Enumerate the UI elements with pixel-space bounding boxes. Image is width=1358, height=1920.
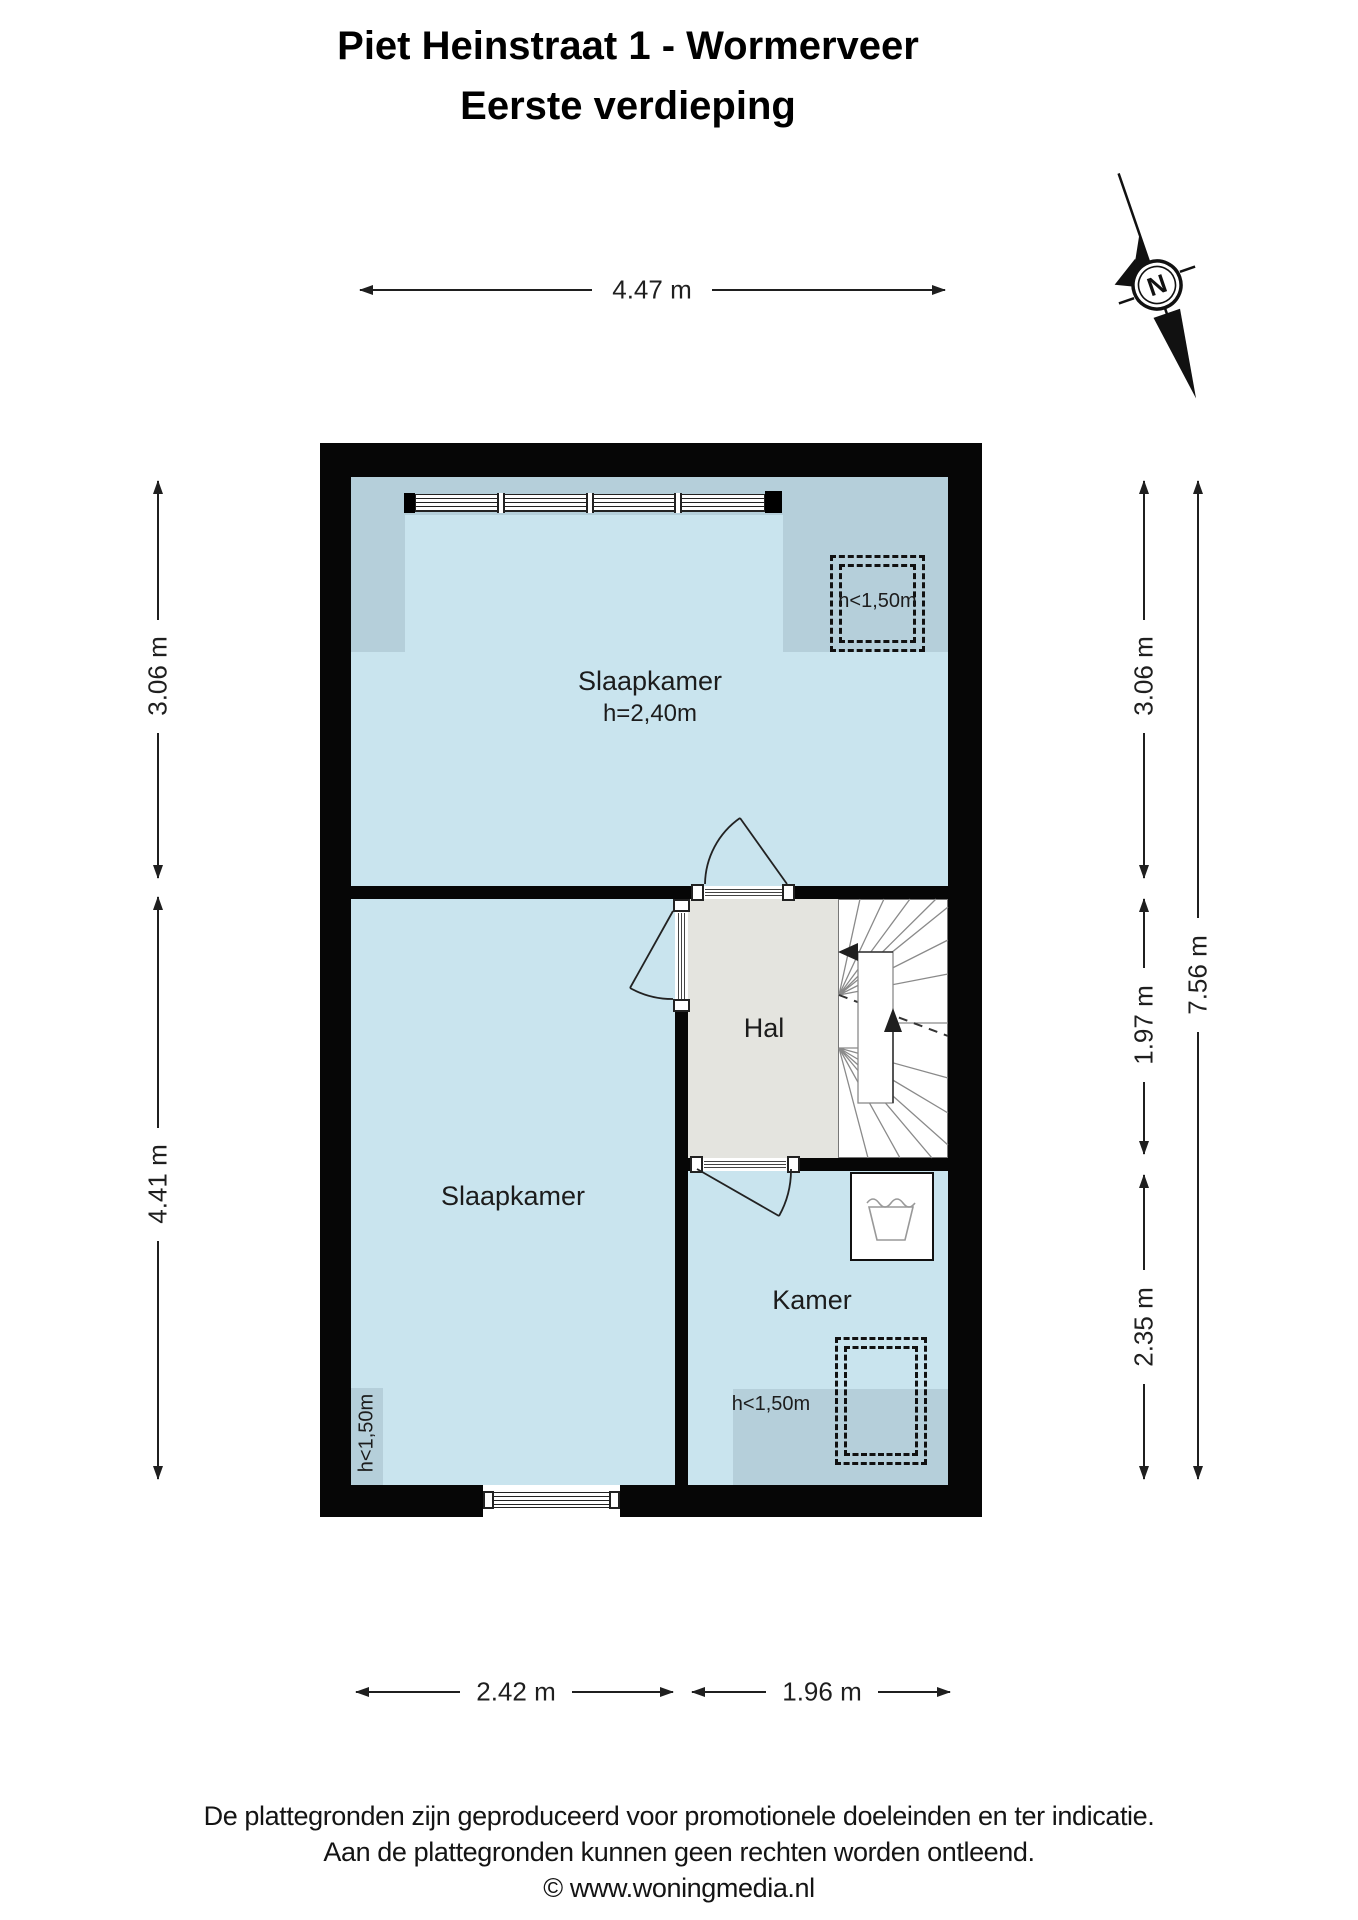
roof-window-dashed-kamer-inner — [844, 1346, 918, 1456]
dim-right-lower: 2.35 m — [1129, 1287, 1160, 1367]
window-mullion — [586, 493, 594, 513]
label-hal: Hal — [704, 1013, 824, 1044]
label-slaapkamer-bottom: Slaapkamer — [393, 1181, 633, 1212]
window-mullion — [497, 493, 505, 513]
staircase-area — [838, 899, 948, 1158]
floorplan-page: Piet Heinstraat 1 - Wormerveer Eerste ve… — [0, 0, 1358, 1920]
compass-letter: N — [1143, 268, 1171, 302]
label-low-height-top: h<1,50m — [830, 590, 925, 613]
label-slaapkamer-top-height: h=2,40m — [530, 700, 770, 728]
window-end-cap-left — [404, 493, 415, 513]
label-slaapkamer-top: Slaapkamer — [530, 666, 770, 697]
dim-left-lower: 4.41 m — [143, 1144, 174, 1224]
door-jamb — [673, 899, 690, 912]
footer-line-2: Aan de plattegronden kunnen geen rechten… — [0, 1834, 1358, 1870]
washing-machine-icon — [850, 1172, 934, 1261]
window-end-cap-right — [765, 491, 782, 513]
door-jamb — [782, 884, 795, 901]
dim-left-upper: 3.06 m — [143, 636, 174, 716]
window-jamb-left — [483, 1491, 494, 1509]
door-jamb — [691, 884, 704, 901]
compass-north-icon: N — [1079, 160, 1236, 412]
door-threshold-top — [705, 887, 783, 898]
dim-right-upper: 3.06 m — [1129, 636, 1160, 716]
footer-line-1: De plattegronden zijn geproduceerd voor … — [0, 1798, 1358, 1834]
dim-right-middle: 1.97 m — [1129, 985, 1160, 1065]
dim-right-total: 7.56 m — [1183, 935, 1214, 1015]
door-threshold-left — [676, 913, 687, 1000]
dim-bottom-right: 1.96 m — [782, 1677, 862, 1708]
door-threshold-bottom — [704, 1159, 786, 1170]
window-jamb-right — [609, 1491, 620, 1509]
footer-disclaimer: De plattegronden zijn geproduceerd voor … — [0, 1798, 1358, 1906]
title-line-1: Piet Heinstraat 1 - Wormerveer — [0, 16, 1256, 76]
low-height-zone-top-left — [351, 477, 405, 652]
page-title: Piet Heinstraat 1 - Wormerveer Eerste ve… — [0, 16, 1256, 136]
label-low-height-kamer: h<1,50m — [701, 1393, 841, 1416]
door-jamb — [690, 1156, 703, 1173]
dim-top-width: 4.47 m — [612, 275, 692, 306]
door-jamb — [673, 999, 690, 1012]
dim-bottom-left: 2.42 m — [476, 1677, 556, 1708]
label-low-height-bottom-room: h<1,50m — [356, 1394, 379, 1472]
window-bottom — [493, 1492, 610, 1508]
label-kamer: Kamer — [732, 1285, 892, 1316]
title-line-2: Eerste verdieping — [0, 76, 1256, 136]
door-jamb — [787, 1156, 800, 1173]
footer-line-3: © www.woningmedia.nl — [0, 1870, 1358, 1906]
window-mullion — [674, 493, 682, 513]
